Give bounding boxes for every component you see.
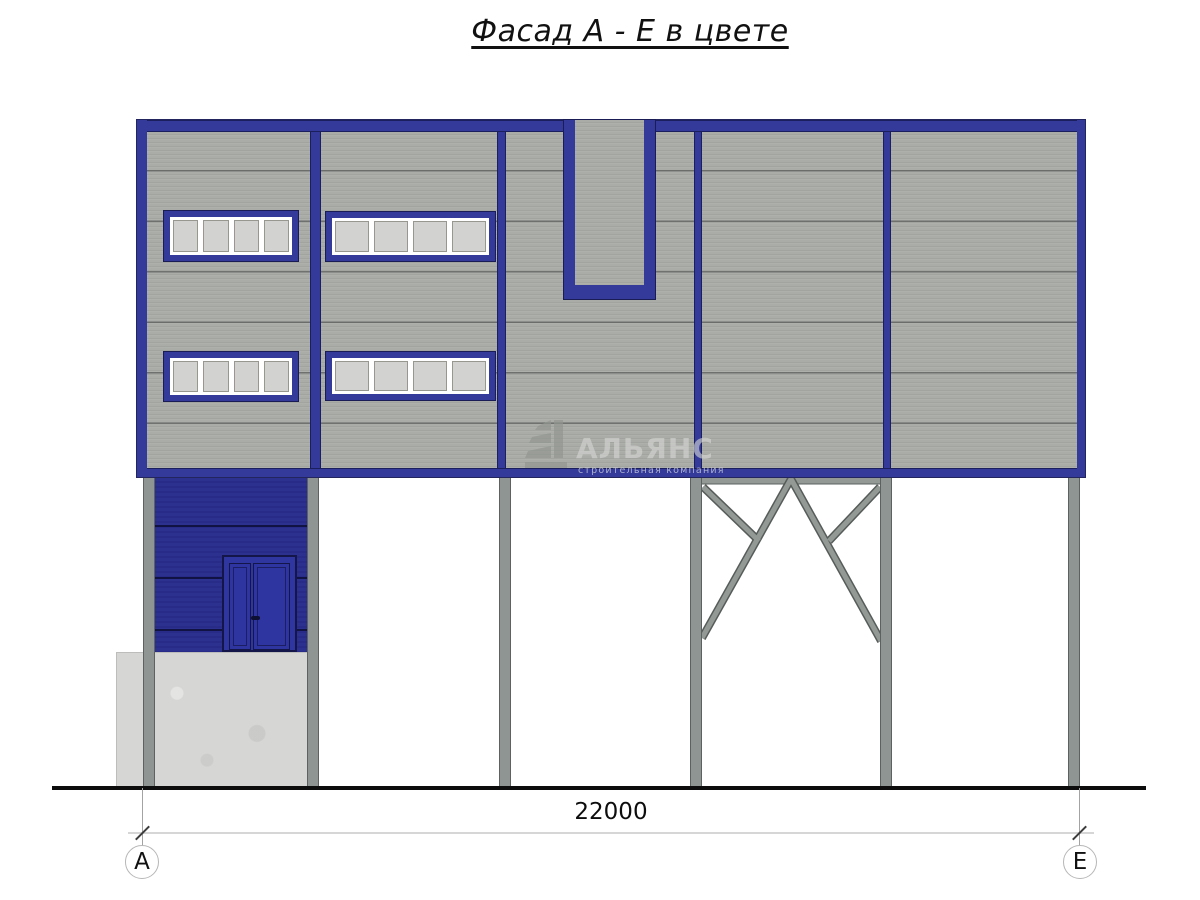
window-pane [264, 361, 289, 392]
facade-mullion [883, 132, 891, 468]
corner-trim-left [137, 120, 147, 477]
corner-trim-right [1077, 120, 1085, 477]
facade-mullion [497, 132, 506, 468]
facade-mullion [310, 132, 321, 468]
door-leaf-left [229, 563, 251, 650]
axis-marker-e-label: Е [1073, 849, 1088, 875]
window-frame [170, 358, 292, 395]
window-frame [332, 218, 489, 255]
column [143, 477, 155, 788]
window-pane [335, 361, 369, 391]
door-leaf-right [253, 563, 290, 650]
column [880, 477, 892, 788]
window-frame [332, 358, 489, 394]
window-pane [203, 361, 228, 392]
ribbon-window [163, 210, 299, 262]
ground-line [52, 786, 1146, 790]
ribbon-window [325, 351, 496, 401]
window-pane [173, 220, 198, 252]
window-pane [374, 361, 408, 391]
dimension-value: 22000 [511, 799, 711, 825]
door-panel [257, 567, 286, 646]
ribbon-window [163, 351, 299, 402]
column [1068, 477, 1080, 788]
facade-body [137, 120, 1085, 477]
column [307, 477, 319, 788]
axis-marker-a-label: А [134, 849, 150, 875]
window-pane [452, 221, 486, 252]
window-pane [452, 361, 486, 391]
entrance-door [222, 555, 297, 652]
roof-recess-frame [564, 120, 655, 299]
window-pane [234, 220, 259, 252]
door-handle-icon [251, 616, 260, 620]
window-pane [264, 220, 289, 252]
drawing-title: Фасад А - Е в цвете [0, 14, 1200, 49]
window-pane [234, 361, 259, 392]
axis-marker-a: А [125, 845, 159, 879]
column [499, 477, 511, 788]
extension-line-a [142, 788, 143, 846]
facade-mullion [694, 132, 702, 468]
window-pane [173, 361, 198, 392]
window-pane [203, 220, 228, 252]
column [690, 477, 702, 788]
window-pane [335, 221, 369, 252]
extension-line-e [1079, 788, 1080, 846]
elevation-drawing: Фасад А - Е в цвете [0, 0, 1200, 900]
door-panel [233, 567, 247, 646]
dimension-line [128, 832, 1094, 834]
floor-band [137, 468, 1085, 477]
window-pane [413, 221, 447, 252]
axis-marker-e: Е [1063, 845, 1097, 879]
window-frame [170, 217, 292, 255]
window-pane [374, 221, 408, 252]
x-bracing [690, 468, 892, 673]
window-pane [413, 361, 447, 391]
ribbon-window [325, 211, 496, 262]
